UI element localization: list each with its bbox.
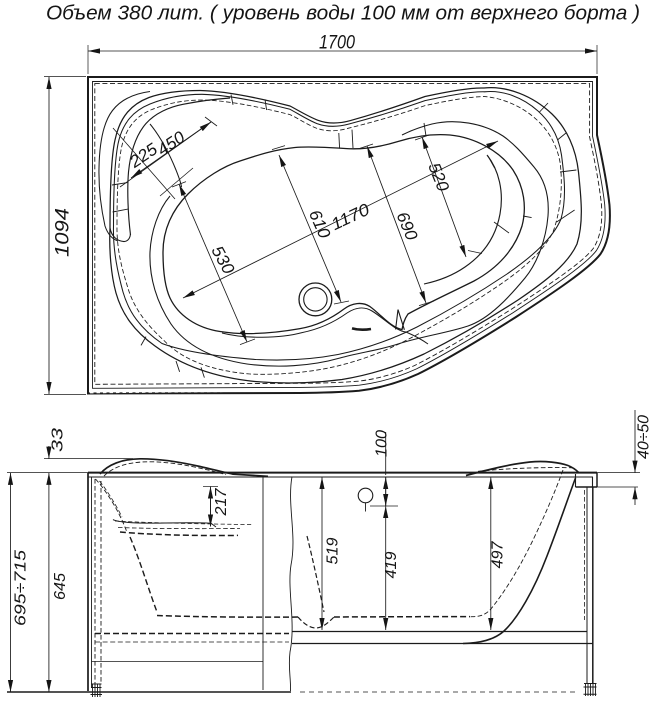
svg-text:100: 100	[374, 430, 391, 457]
svg-text:40÷50: 40÷50	[636, 415, 653, 459]
svg-text:33: 33	[50, 427, 67, 452]
svg-text:645: 645	[52, 573, 69, 600]
svg-text:1170: 1170	[328, 200, 373, 234]
svg-text:695÷715: 695÷715	[13, 550, 30, 626]
svg-text:519: 519	[325, 537, 342, 564]
svg-text:Объем 380 лит. ( уровень воды: Объем 380 лит. ( уровень воды 100 мм от …	[46, 3, 640, 25]
svg-text:690: 690	[393, 209, 422, 244]
svg-text:1094: 1094	[52, 208, 73, 257]
svg-text:1700: 1700	[319, 33, 355, 54]
svg-text:217: 217	[213, 487, 230, 516]
svg-text:419: 419	[383, 551, 400, 578]
svg-text:497: 497	[490, 540, 507, 568]
